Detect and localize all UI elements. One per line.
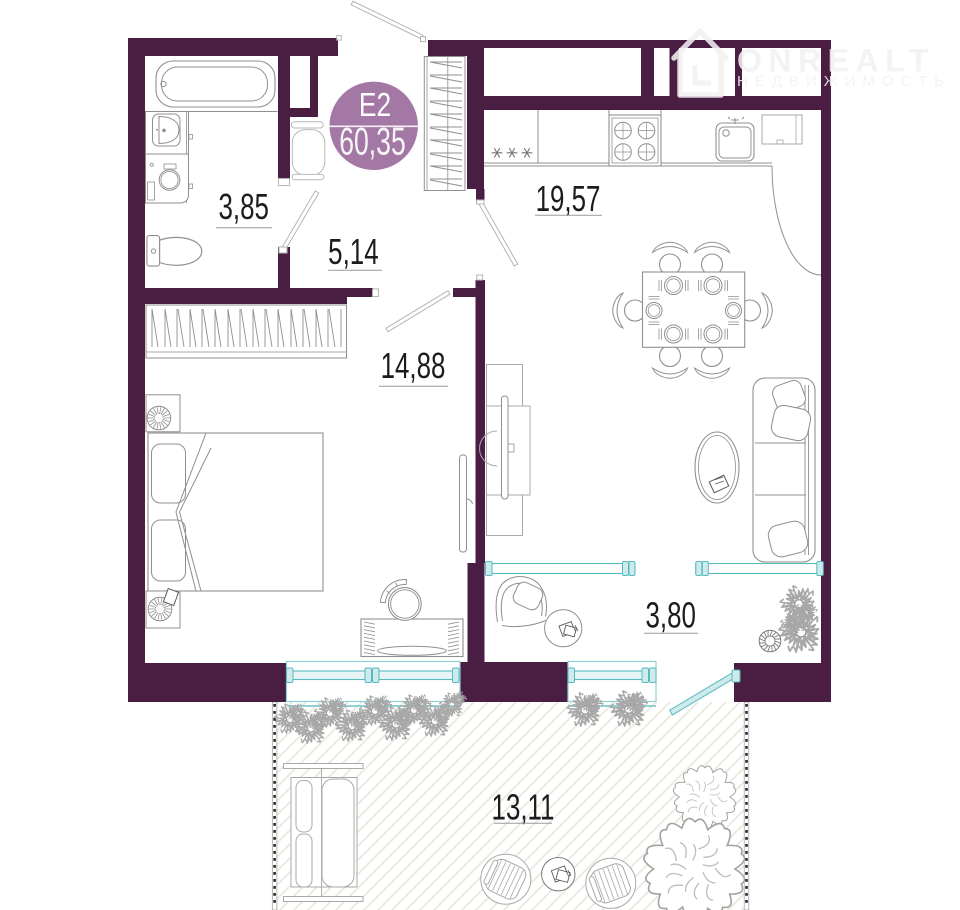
svg-text:3,80: 3,80 — [645, 594, 695, 636]
svg-text:14,88: 14,88 — [381, 345, 446, 387]
svg-text:5,14: 5,14 — [328, 231, 378, 273]
svg-text:60,35: 60,35 — [339, 121, 405, 164]
svg-text:13,11: 13,11 — [492, 786, 555, 828]
svg-text:3,85: 3,85 — [218, 186, 268, 228]
svg-text:E2: E2 — [359, 87, 391, 123]
svg-text:НЕДВИЖИМОСТЬ: НЕДВИЖИМОСТЬ — [737, 73, 951, 90]
svg-text:19,57: 19,57 — [536, 178, 601, 220]
